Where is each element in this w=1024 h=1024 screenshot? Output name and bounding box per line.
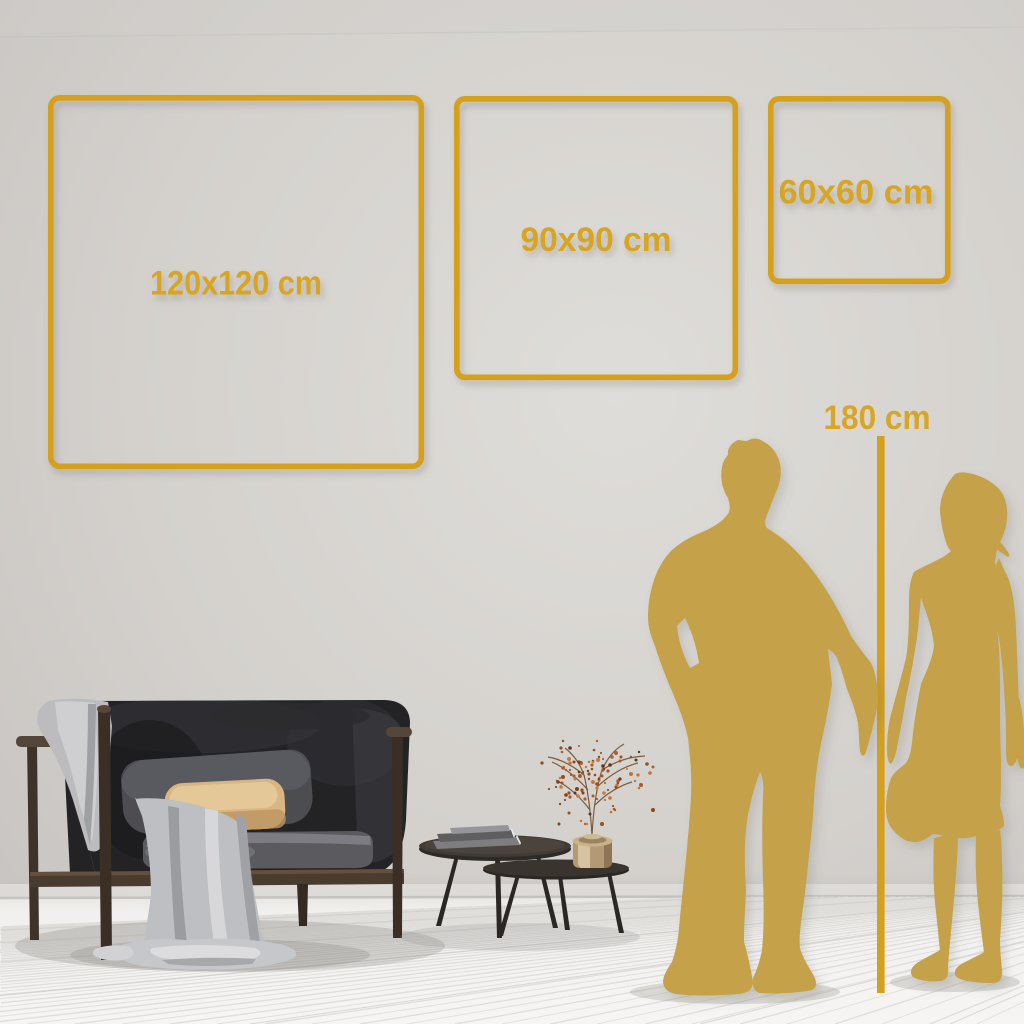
svg-text:60x60 cm: 60x60 cm [779, 174, 934, 212]
svg-text:180 cm: 180 cm [824, 399, 931, 437]
svg-text:120x120 cm: 120x120 cm [150, 265, 322, 303]
svg-text:90x90 cm: 90x90 cm [521, 221, 672, 259]
